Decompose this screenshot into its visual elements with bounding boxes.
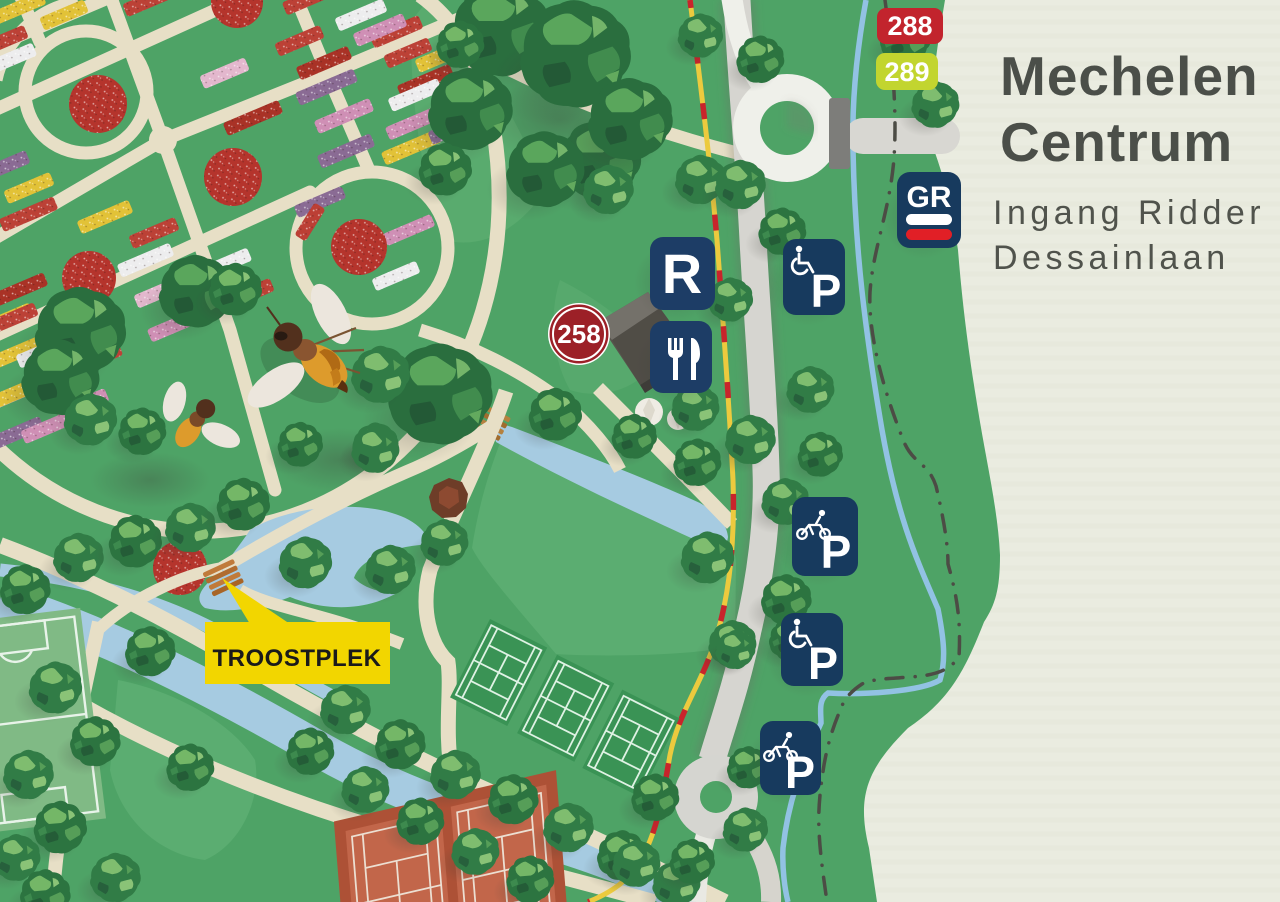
svg-text:Dessainlaan: Dessainlaan [993, 239, 1230, 277]
svg-text:P: P [811, 265, 842, 317]
svg-text:Centrum: Centrum [1000, 111, 1233, 173]
svg-text:P: P [808, 638, 838, 689]
svg-text:TROOSTPLEK: TROOSTPLEK [212, 645, 381, 672]
svg-text:289: 289 [884, 57, 929, 87]
svg-text:288: 288 [887, 11, 932, 41]
svg-text:258: 258 [557, 319, 600, 349]
svg-text:P: P [785, 747, 815, 798]
svg-text:Mechelen: Mechelen [1000, 45, 1259, 107]
svg-text:Ingang Ridder: Ingang Ridder [993, 194, 1265, 232]
svg-text:R: R [662, 242, 702, 305]
svg-text:GR: GR [907, 181, 952, 214]
